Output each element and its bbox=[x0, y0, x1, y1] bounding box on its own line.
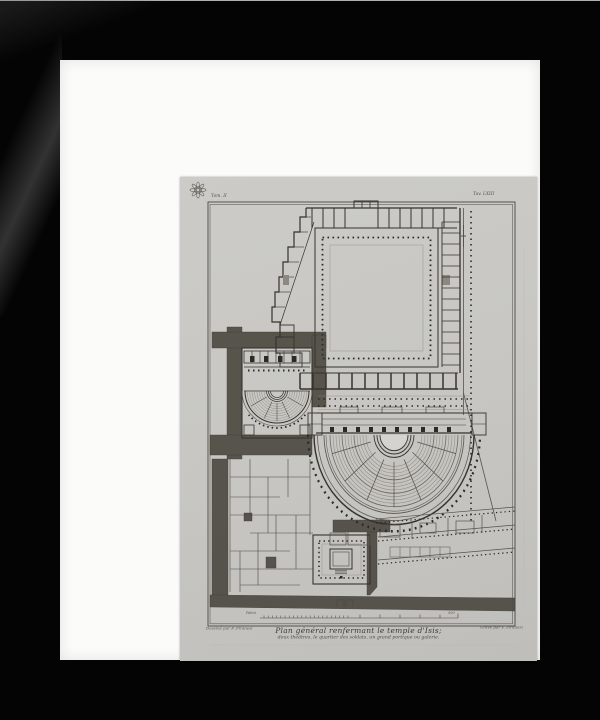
large-theater-cavea bbox=[308, 435, 480, 531]
plate-mark-right: Tav. LXIII bbox=[473, 191, 494, 196]
frame-top-highlight bbox=[0, 0, 600, 1]
streets bbox=[210, 327, 515, 611]
mat-board: Tom. II Tav. LXIII Plan général renferma… bbox=[60, 60, 540, 660]
long-portico bbox=[464, 208, 497, 523]
housing-blocks bbox=[230, 459, 313, 592]
credit-drawn-by: Dessiné par F. Piranesi bbox=[206, 626, 253, 631]
scale-label: Palmi bbox=[246, 611, 256, 615]
small-theater bbox=[242, 348, 312, 438]
temple-of-isis bbox=[313, 535, 370, 584]
large-theater-stage bbox=[308, 396, 486, 435]
plan-etching bbox=[180, 177, 537, 661]
quadriportico bbox=[272, 201, 466, 389]
frame-corner-sheen bbox=[0, 0, 220, 62]
rosette-stamp-icon bbox=[190, 182, 206, 198]
scale-end-number: 500 bbox=[448, 611, 455, 615]
credit-engraved-by: Gravé par F. Piranesi bbox=[480, 625, 523, 630]
plate-subtitle: deux théâtres, le quartier des soldats, … bbox=[266, 635, 452, 640]
plate-mark-left: Tom. II bbox=[211, 193, 227, 198]
frame-left-sheen bbox=[0, 36, 62, 316]
engraving-print: Tom. II Tav. LXIII Plan général renferma… bbox=[180, 177, 537, 661]
